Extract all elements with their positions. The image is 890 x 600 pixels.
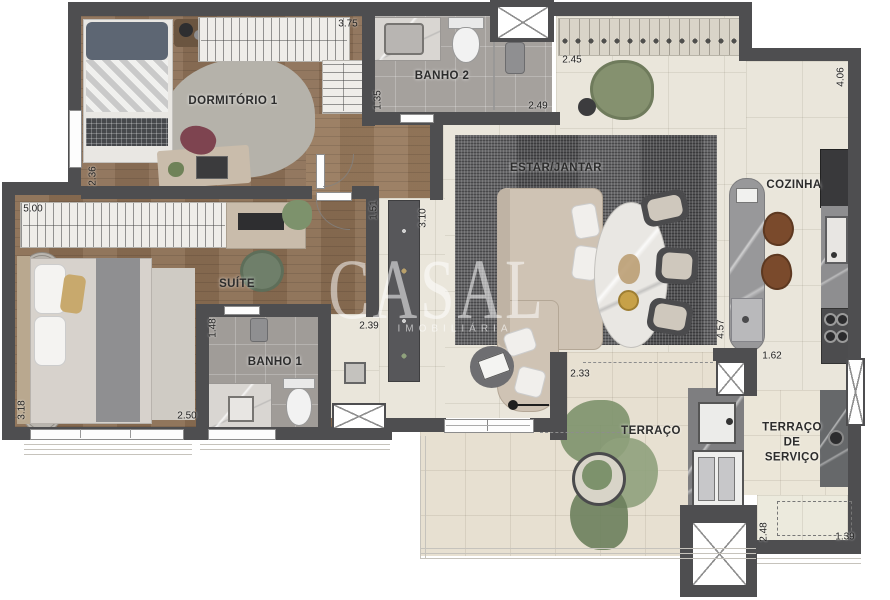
dorm-bed-throw xyxy=(86,118,168,146)
washer-door-2 xyxy=(718,457,735,501)
servico-edge-2 xyxy=(757,563,861,564)
terraco-dashed-lower xyxy=(540,432,630,433)
shaft-bottom-center xyxy=(691,521,748,587)
terraco-edge-bottom-1 xyxy=(420,548,756,549)
terraco-edge-bottom-2 xyxy=(420,553,756,554)
floor-lamp-arm xyxy=(515,404,549,406)
suite-sill-2 xyxy=(24,449,192,450)
sliding-door-rail xyxy=(446,425,530,426)
terraco-edge-bottom-3 xyxy=(420,558,756,559)
dorm-closet-top xyxy=(198,17,350,62)
dim-hall-depth: 3.10 xyxy=(418,208,429,227)
dim-dormitorio-depth: 2.36 xyxy=(88,166,99,185)
suite-closet xyxy=(20,202,228,248)
label-terraco: TERRAÇO xyxy=(621,425,681,437)
wall-banho2-bottom xyxy=(362,112,560,125)
shaft-top xyxy=(496,5,550,40)
banho1-shower-head xyxy=(250,318,268,342)
door-banho2 xyxy=(400,114,434,123)
window-dorm-left xyxy=(69,110,82,168)
wall-right xyxy=(848,48,861,548)
servico-edge-1 xyxy=(757,558,861,559)
wall-top-estar xyxy=(556,2,752,16)
dim-suite-depth: 2.50 xyxy=(177,411,196,422)
dim-banho1-width: 2.39 xyxy=(359,321,378,332)
dorm-bed-pillow xyxy=(86,22,168,60)
kitchen-faucet xyxy=(831,252,837,258)
wall-suite-left xyxy=(2,182,15,440)
window-right-wall xyxy=(846,358,865,426)
dim-island-length: 4.57 xyxy=(716,319,727,338)
suite-tv xyxy=(238,213,284,230)
wall-dorm-bottom xyxy=(81,186,312,199)
banho2-toilet xyxy=(452,27,480,63)
suite-dresser-plant xyxy=(282,200,312,230)
wall-banho1-right xyxy=(318,304,331,440)
island-deco xyxy=(736,188,758,203)
wall-suite-connector xyxy=(2,182,81,195)
estar-coat-rack xyxy=(558,18,748,56)
banho1-toilet xyxy=(286,388,312,426)
window-suite xyxy=(30,429,184,440)
dim-dormitorio-width: 3.75 xyxy=(338,19,357,30)
door-banho1 xyxy=(224,306,260,315)
servico-sink-faucet xyxy=(726,418,733,425)
water-heater xyxy=(344,362,366,384)
dim-hall-width: 1.51 xyxy=(369,200,380,219)
estar-armchair-table xyxy=(578,98,596,116)
wall-top-left xyxy=(68,2,556,16)
label-estar: ESTAR/JANTAR xyxy=(510,162,602,174)
kitchen-sink xyxy=(825,216,848,264)
estar-armchair-green xyxy=(590,60,654,120)
suite-bed-pillow2 xyxy=(34,316,66,366)
suite-bed-headboard xyxy=(17,256,30,424)
washer-door-1 xyxy=(698,457,715,501)
wall-estar-bottom-left xyxy=(379,418,446,432)
window-banho1-sill xyxy=(208,429,276,440)
dim-cozinha-aisle: 1.62 xyxy=(762,351,781,362)
servico-tank-faucet xyxy=(828,430,844,446)
dim-terraco-opening: 2.33 xyxy=(570,369,589,380)
dining-centerpiece xyxy=(618,254,640,284)
dim-banho2-depth: 1.35 xyxy=(373,90,384,109)
dim-estar-top: 2.45 xyxy=(562,55,581,66)
island-faucet xyxy=(742,316,749,323)
estar-sideboard xyxy=(388,200,420,382)
dim-servico-depth: 2.48 xyxy=(759,522,770,541)
terraco-plant-top xyxy=(582,460,612,490)
label-dormitorio1: DORMITÓRIO 1 xyxy=(188,95,277,107)
dim-banho2-width: 2.49 xyxy=(528,101,547,112)
suite-sill-1 xyxy=(24,444,192,445)
wall-cozinha-top xyxy=(745,48,861,61)
sofa-back xyxy=(497,188,510,348)
fridge xyxy=(820,149,850,208)
dining-dish xyxy=(618,290,639,311)
dim-cozinha-depth: 4.06 xyxy=(836,67,847,86)
label-suite: SUÍTE xyxy=(219,278,255,290)
dim-suite-width: 5.00 xyxy=(23,204,42,215)
dining-chair-2-seat xyxy=(661,252,693,280)
label-banho1: BANHO 1 xyxy=(248,356,303,368)
label-banho2: BANHO 2 xyxy=(415,70,470,82)
sliding-door-terraco xyxy=(444,419,534,433)
wall-terraco-divider xyxy=(550,352,567,440)
banho1-shower-drain xyxy=(228,396,254,422)
terraco-edge-left-2 xyxy=(425,436,426,558)
banho2-shower-fixture xyxy=(505,42,525,74)
dim-suite-side: 3.18 xyxy=(17,400,28,419)
shaft-island-end xyxy=(716,361,746,396)
dorm-closet-side xyxy=(322,60,364,114)
label-cozinha: COZINHA xyxy=(766,179,821,191)
banho1-sill-2 xyxy=(200,449,390,450)
window-suite-mullion-1 xyxy=(80,429,81,438)
terraco-dashed-upper xyxy=(583,362,713,363)
dorm-bed-blanket xyxy=(86,60,168,112)
window-suite-mullion-2 xyxy=(130,429,131,438)
label-terraco-servico: TERRAÇO DE SERVIÇO xyxy=(762,421,822,466)
terraco-edge-left-1 xyxy=(420,436,421,558)
banho2-sink xyxy=(384,23,424,55)
floor-plan: DORMITÓRIO 1 BANHO 2 SUÍTE BANHO 1 ESTAR… xyxy=(0,0,890,600)
dim-servico-width: 1.39 xyxy=(835,532,854,543)
wall-banho1-top xyxy=(196,304,331,317)
suite-bed-throw xyxy=(96,258,140,422)
suite-sill-3 xyxy=(24,454,192,455)
dim-banho1-door: 1.48 xyxy=(208,318,219,337)
wall-hall-estar xyxy=(430,125,443,200)
banho1-sill-1 xyxy=(200,444,390,445)
dorm-nightstand-lamp xyxy=(179,23,193,37)
window-banho1 xyxy=(332,403,386,430)
dorm-laptop xyxy=(196,156,228,179)
